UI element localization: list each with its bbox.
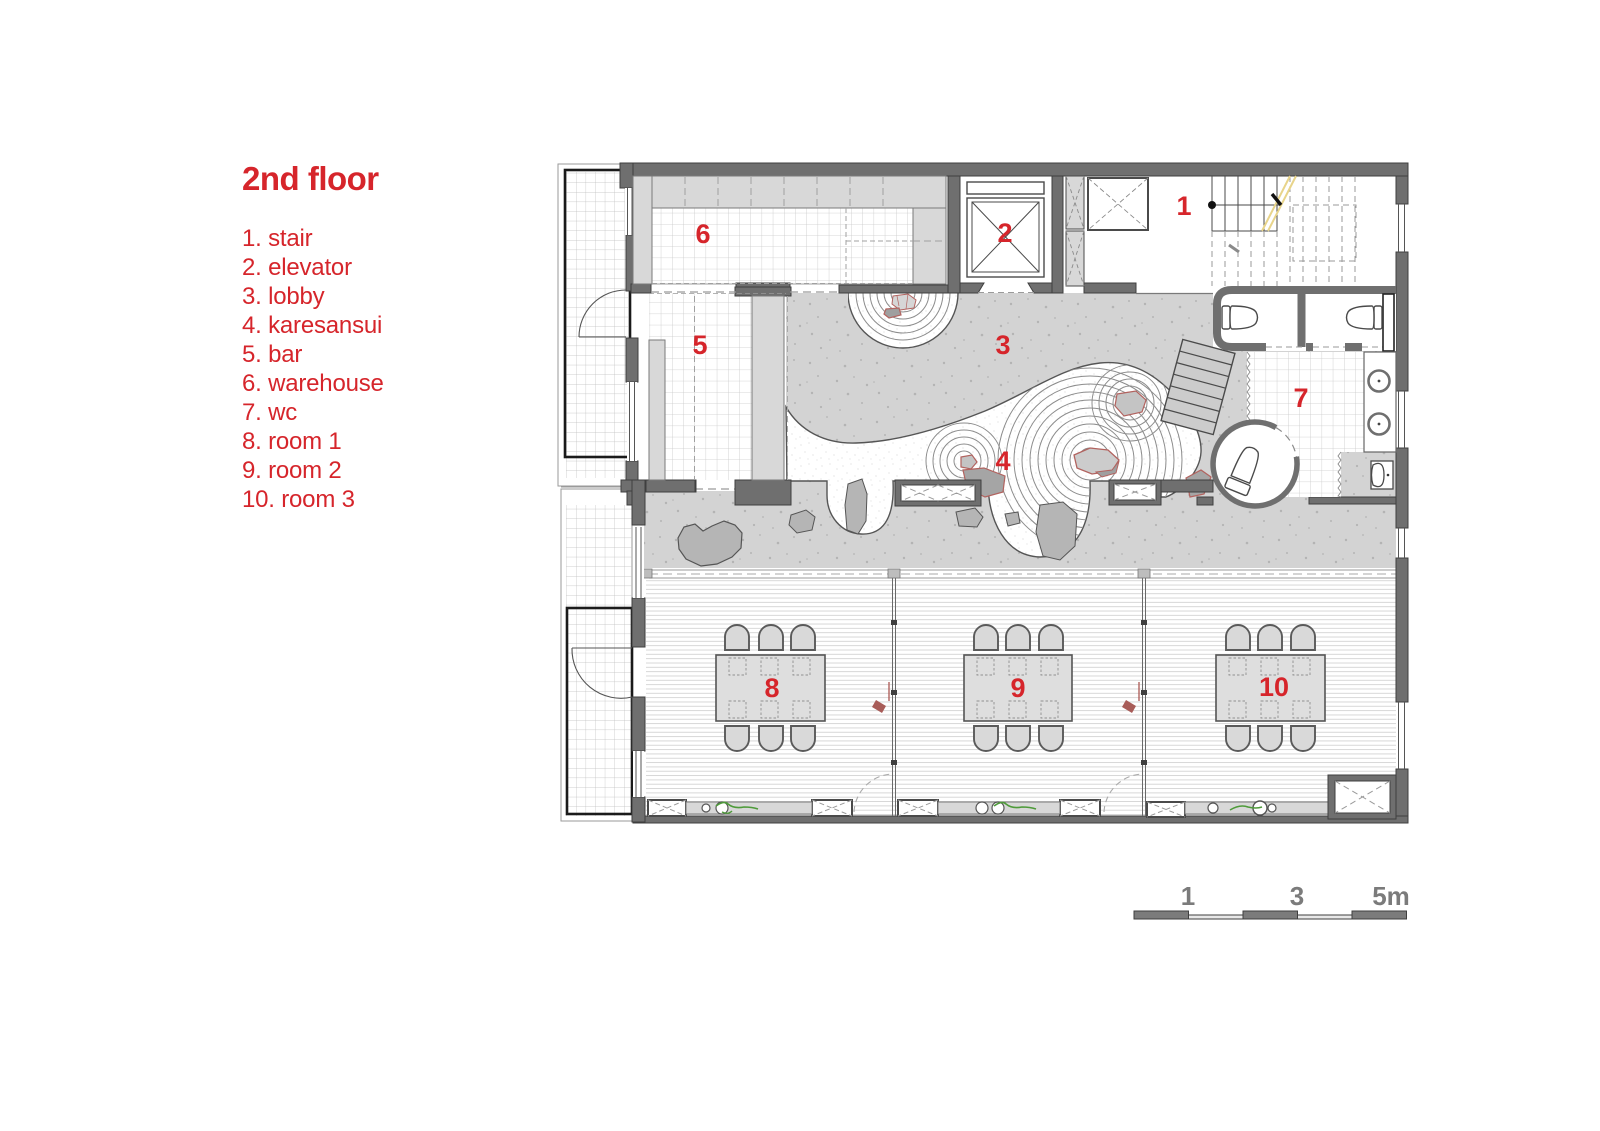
svg-text:2: 2 <box>997 218 1012 248</box>
svg-text:5. bar: 5. bar <box>242 341 302 368</box>
svg-text:9: 9 <box>1010 673 1025 703</box>
svg-text:9. room 2: 9. room 2 <box>242 457 342 484</box>
svg-text:3: 3 <box>995 330 1010 360</box>
svg-text:3. lobby: 3. lobby <box>242 283 325 310</box>
svg-text:1. stair: 1. stair <box>242 225 313 252</box>
svg-text:4: 4 <box>995 446 1010 476</box>
svg-text:2nd floor: 2nd floor <box>242 160 379 197</box>
svg-text:8. room 1: 8. room 1 <box>242 428 342 455</box>
svg-text:4. karesansui: 4. karesansui <box>242 312 382 339</box>
svg-text:1: 1 <box>1181 881 1195 911</box>
svg-text:5: 5 <box>692 330 707 360</box>
svg-text:8: 8 <box>764 673 779 703</box>
svg-text:6: 6 <box>695 219 710 249</box>
svg-text:7. wc: 7. wc <box>242 399 297 426</box>
svg-text:10: 10 <box>1259 672 1289 702</box>
svg-text:3: 3 <box>1290 881 1304 911</box>
svg-text:2. elevator: 2. elevator <box>242 254 352 281</box>
svg-text:5m: 5m <box>1372 881 1410 911</box>
svg-text:10. room 3: 10. room 3 <box>242 486 355 513</box>
svg-text:7: 7 <box>1293 383 1308 413</box>
svg-text:1: 1 <box>1176 191 1191 221</box>
svg-text:6. warehouse: 6. warehouse <box>242 370 384 397</box>
